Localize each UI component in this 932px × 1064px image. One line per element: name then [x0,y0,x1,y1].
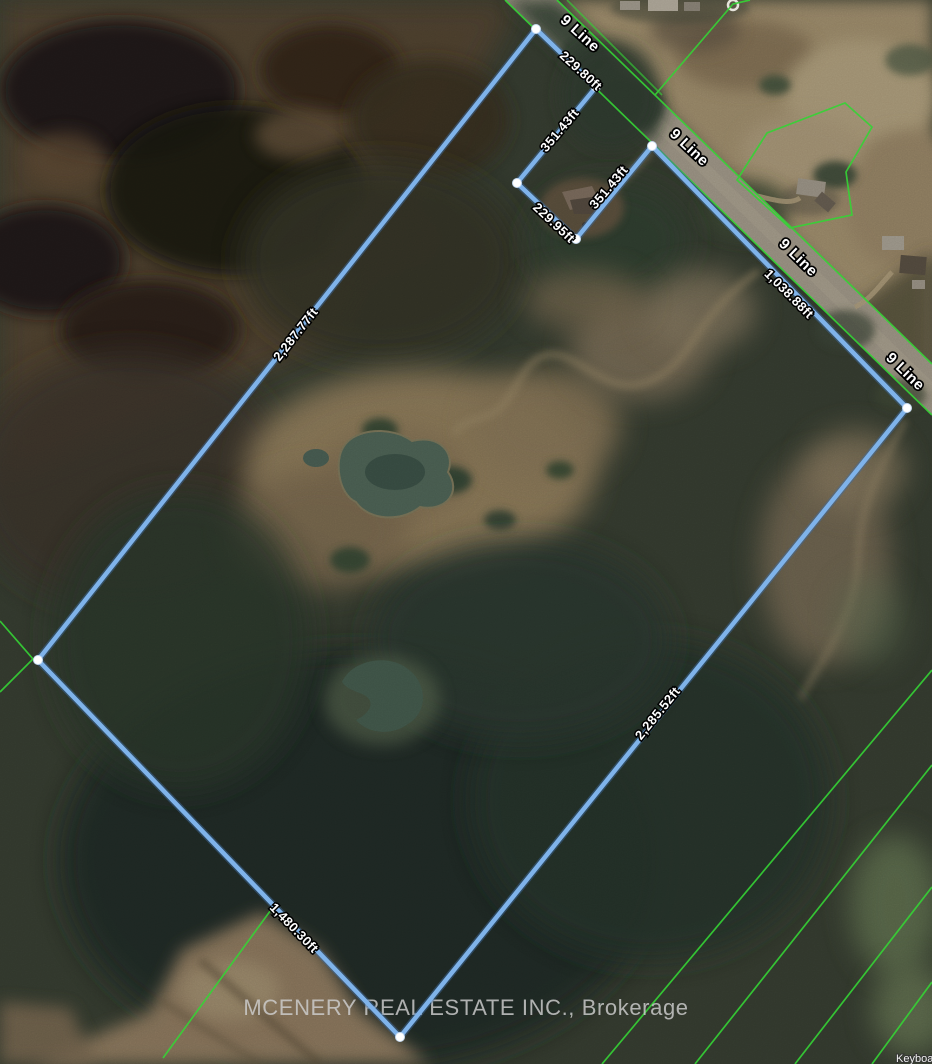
satellite-map[interactable]: MCENERY REAL ESTATE INC., Brokerage 229.… [0,0,932,1064]
vertex-dot[interactable] [396,1033,405,1042]
vertex-dot[interactable] [903,404,912,413]
vertex-dot[interactable] [34,656,43,665]
vertex-dot[interactable] [513,179,522,188]
map-viewport[interactable]: MCENERY REAL ESTATE INC., Brokerage 229.… [0,0,932,1064]
keyboard-shortcuts-link[interactable]: Keyboard shortcuts [896,1053,932,1064]
watermark: MCENERY REAL ESTATE INC., Brokerage [243,995,688,1020]
vertex-dot[interactable] [648,142,657,151]
vertex-dot[interactable] [532,25,541,34]
